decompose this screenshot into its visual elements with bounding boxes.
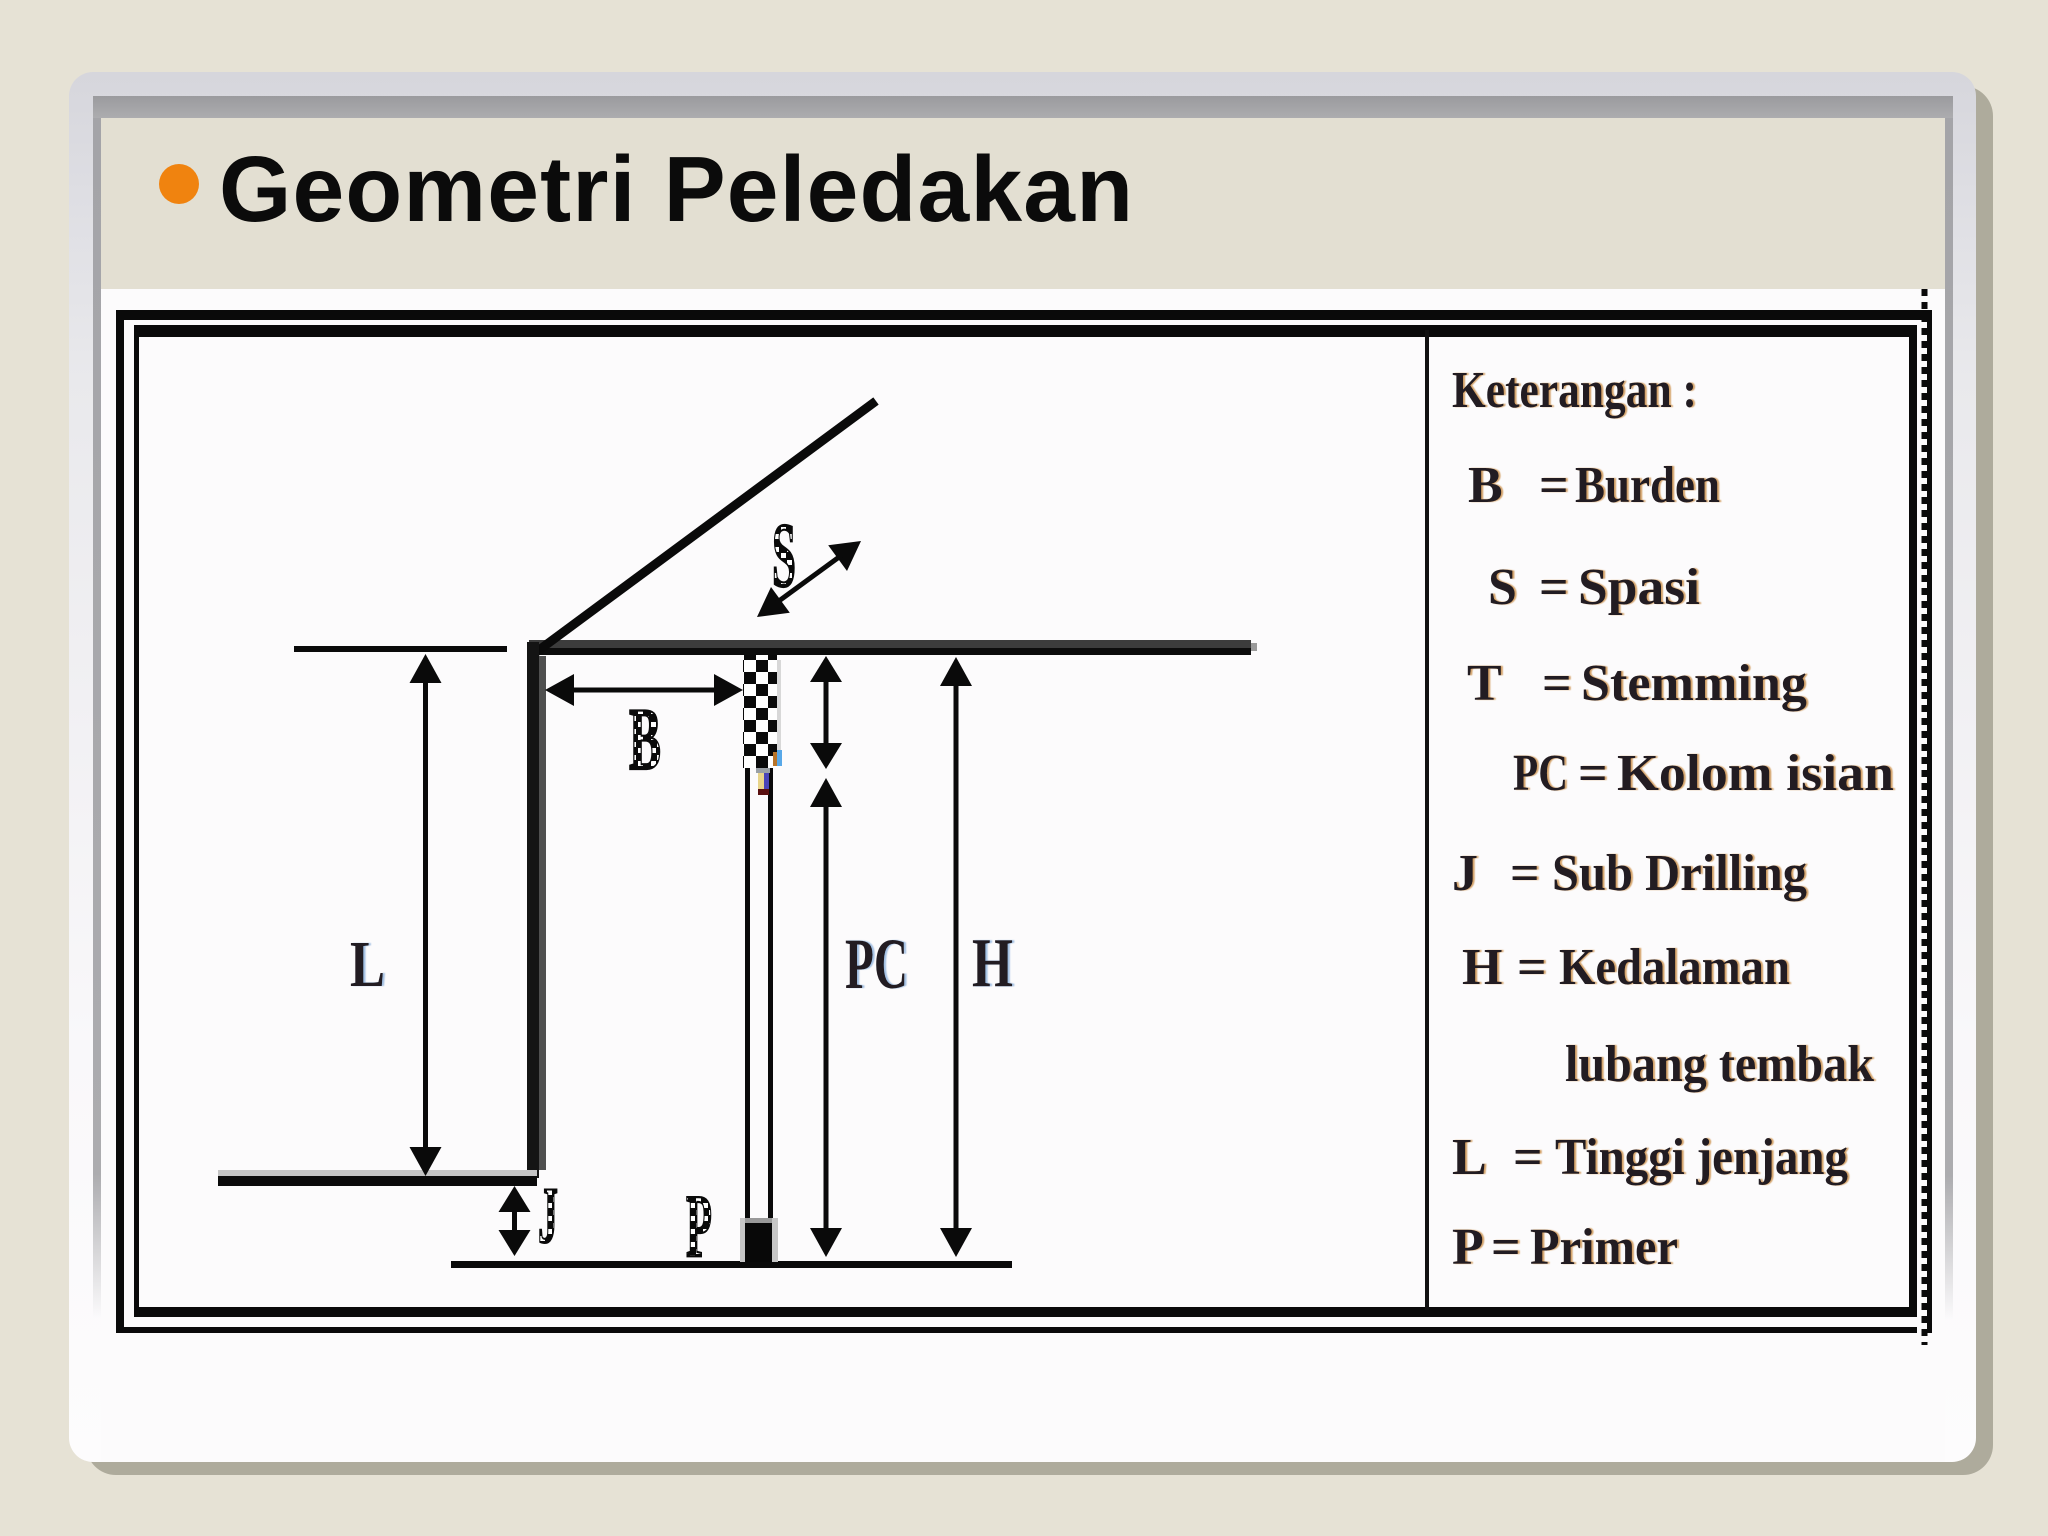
svg-text:=: = <box>1578 745 1608 802</box>
svg-text:Stemming: Stemming <box>1581 655 1807 712</box>
svg-text:Kedalaman: Kedalaman <box>1559 939 1790 996</box>
svg-text:lubang tembak: lubang tembak <box>1565 1036 1874 1093</box>
svg-text:J: J <box>1452 845 1478 902</box>
svg-text:Primer: Primer <box>1530 1219 1678 1276</box>
svg-text:L: L <box>350 928 385 1001</box>
svg-text:T: T <box>1467 655 1502 712</box>
svg-text:Burden: Burden <box>1575 457 1720 514</box>
svg-text:B: B <box>629 691 661 789</box>
svg-text:=: = <box>1539 559 1569 616</box>
svg-text:=: = <box>1513 1129 1543 1186</box>
svg-text:P: P <box>686 1177 712 1276</box>
svg-text:PC: PC <box>1513 745 1568 802</box>
svg-text:Spasi: Spasi <box>1578 559 1700 616</box>
svg-text:Geometri Peledakan: Geometri Peledakan <box>219 137 1133 241</box>
svg-text:H: H <box>972 925 1013 1002</box>
svg-text:=: = <box>1517 939 1547 996</box>
svg-text:Tinggi jenjang: Tinggi jenjang <box>1555 1129 1848 1186</box>
svg-text:=: = <box>1491 1219 1521 1276</box>
svg-text:B: B <box>1468 457 1503 514</box>
svg-text:H: H <box>1462 939 1502 996</box>
svg-text:Sub Drilling: Sub Drilling <box>1552 845 1807 902</box>
svg-text:=: = <box>1539 457 1569 514</box>
svg-text:S: S <box>1488 559 1517 616</box>
svg-text:L: L <box>1452 1129 1487 1186</box>
svg-text:Kolom isian: Kolom isian <box>1617 745 1894 802</box>
svg-text:S: S <box>772 504 796 606</box>
svg-text:J: J <box>538 1172 558 1260</box>
svg-text:PC: PC <box>845 924 908 1004</box>
svg-text:=: = <box>1542 655 1572 712</box>
svg-text:P: P <box>1452 1219 1484 1276</box>
svg-text:Keterangan :: Keterangan : <box>1452 362 1697 419</box>
svg-text:=: = <box>1510 845 1540 902</box>
